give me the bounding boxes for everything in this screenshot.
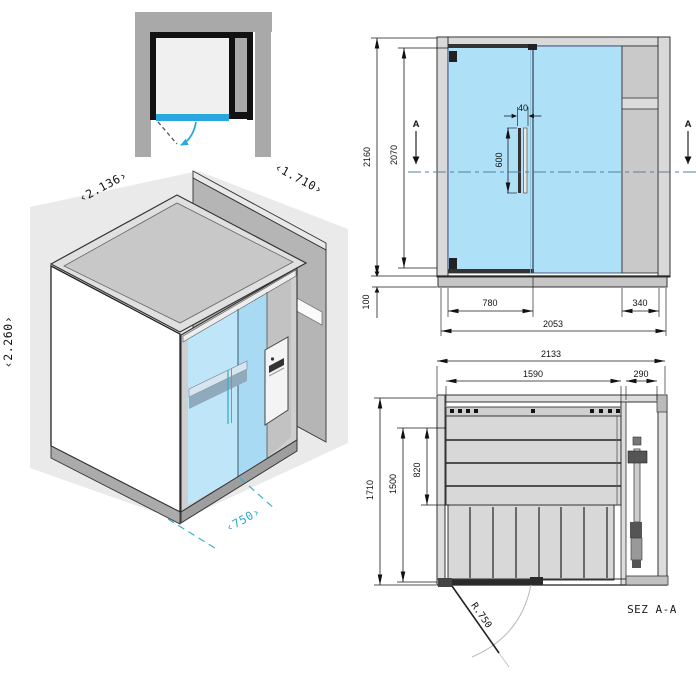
dim-panel-width: 340 [622, 288, 659, 317]
svg-text:600: 600 [494, 152, 504, 167]
cabin-partition [229, 32, 235, 117]
sec-open-door-line [452, 586, 499, 653]
door-open-dashed-line [158, 122, 177, 144]
svg-text:1710: 1710 [365, 480, 375, 500]
elev-door-bottom-track [448, 269, 534, 273]
svg-text:2053: 2053 [543, 319, 563, 329]
steam-dispenser-panel [265, 337, 288, 425]
iso-depth-label: ‹1.710› [272, 160, 325, 197]
dim-total-depth: 1710 [365, 398, 436, 585]
svg-text:2070: 2070 [389, 145, 399, 165]
sec-right-wall [658, 395, 667, 585]
svg-text:100: 100 [361, 294, 371, 309]
elev-glass [448, 46, 622, 273]
dim-total-width: 2133 [437, 349, 665, 394]
door-dim-extension-1 [168, 519, 218, 550]
cabin-wall-left [150, 32, 156, 120]
cabin-wall-bottom-right [229, 112, 253, 119]
technical-column-plan [235, 38, 247, 112]
section-view: R.750 2133 1590 290 1710 [365, 349, 677, 667]
sec-corner-hinge [438, 578, 452, 587]
elev-door-top-track [448, 44, 534, 48]
svg-text:1590: 1590 [523, 369, 543, 379]
sec-column-rail [628, 437, 647, 568]
front-elevation: A A 2160 2070 100 [361, 37, 698, 336]
sec-left-wall [437, 395, 445, 585]
door-swing-arrow [181, 122, 196, 145]
glass-fixed-panel [238, 292, 267, 477]
iso-height-label: ‹2.260› [1, 316, 15, 369]
niche-left-wall [135, 12, 151, 157]
elev-handle-bar-2 [524, 128, 528, 193]
svg-text:340: 340 [632, 298, 647, 308]
sec-base-strip [626, 576, 668, 585]
sec-partition [621, 402, 626, 585]
niche-right-wall [255, 12, 271, 157]
niche-back-wall [135, 12, 272, 32]
sec-back-wall [437, 395, 665, 402]
section-marker-left: A [413, 119, 420, 164]
plan-view [135, 12, 272, 157]
section-marker-right: A [685, 119, 692, 164]
svg-text:2160: 2160 [362, 147, 372, 167]
elev-hinge-top [449, 51, 457, 62]
svg-text:2133: 2133 [541, 349, 561, 359]
cabin-wall-top [150, 32, 253, 38]
svg-text:40: 40 [518, 103, 528, 113]
dim-base-height: 100 [361, 272, 437, 319]
section-title: SEZ A-A [627, 603, 677, 616]
section-marker-letter: A [413, 119, 420, 130]
svg-text:820: 820 [412, 462, 422, 477]
elev-technical-panel [622, 46, 658, 273]
elev-base-tray [438, 277, 667, 287]
cabin-wall-right [247, 32, 253, 120]
sec-floor-boards [448, 505, 614, 580]
dim-total-height: 2160 [362, 38, 437, 276]
dim-system-width: 2053 [441, 288, 666, 336]
iso-view: ‹2.136› ‹1.710› ‹2.260› ‹750› [1, 160, 348, 550]
sec-bench-slats [446, 416, 621, 505]
elev-hinge-bottom [449, 258, 457, 269]
svg-text:290: 290 [633, 369, 648, 379]
sec-door-leaf [450, 580, 532, 585]
cabin-interior-plan [155, 37, 229, 115]
dispenser-knob [271, 357, 274, 360]
glass-front-plan [156, 114, 229, 121]
glass-door-panel [188, 309, 238, 505]
svg-text:780: 780 [482, 298, 497, 308]
sec-door-stop [530, 577, 543, 585]
section-marker-letter: A [685, 119, 692, 130]
sec-swing-tail [499, 653, 509, 667]
elev-right-post [658, 37, 670, 277]
elev-door-roller [528, 44, 537, 50]
svg-text:1500: 1500 [388, 474, 398, 494]
elev-left-post [437, 37, 448, 277]
elev-panel-band [622, 98, 658, 109]
sec-corner-block [657, 395, 667, 412]
technical-drawing-sheet: ‹2.136› ‹1.710› ‹2.260› ‹750› A A [0, 0, 700, 700]
iso-door-width-label: ‹750› [223, 504, 263, 534]
elev-handle-bar [518, 128, 521, 193]
drawing-svg: ‹2.136› ‹1.710› ‹2.260› ‹750› A A [0, 0, 700, 700]
